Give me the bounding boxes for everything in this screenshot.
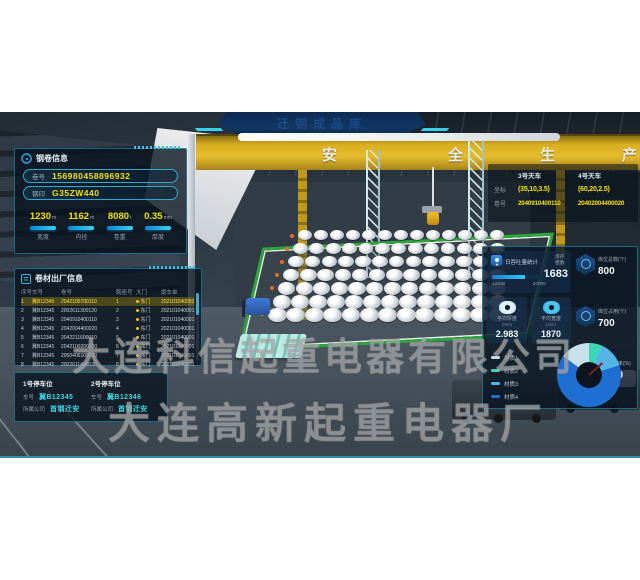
shipment-title-row: 卷材出厂信息 (15, 269, 201, 286)
shipment-row[interactable]: 8冀B1234520026114000308东门202101040001 (21, 360, 194, 369)
plate-value: 冀B12345 (39, 392, 73, 402)
steel-stamp-field[interactable]: 钢印 G35ZW440 (23, 186, 178, 200)
crane-3-coil: 2040910400110 (518, 200, 578, 207)
coil-icon (543, 301, 560, 314)
scrollbar-thumb[interactable] (196, 293, 199, 315)
coil-number-field[interactable]: 卷号 156980458896932 (23, 169, 178, 183)
crane-header-row: 3号天车 4号天车 (494, 168, 632, 182)
crane-coords-row: 坐标 (35,10,3.5) (60,20,2.5) (494, 182, 632, 196)
coil-label: 卷号 (494, 199, 518, 208)
warehouse-title-banner: 迁钢成品库 (218, 112, 426, 135)
scene-viewport[interactable]: 安 全 生 产 迁钢成品库 钢卷信息 卷号 156980458896932 钢印 (0, 112, 640, 458)
kpi-value: 800 (598, 266, 615, 277)
kpi-label: 库位占用(个) (598, 308, 636, 315)
metric-label: 厚度 (140, 232, 176, 241)
coil-metrics: 1230m 宽度 1162m 内径 8080t 卷重 0.35mm 厚度 (15, 200, 186, 241)
shipment-title: 卷材出厂信息 (35, 273, 83, 284)
company-label: 所属公司 (23, 405, 45, 413)
metric-unit: m (52, 215, 56, 221)
steel-stamp-label: 钢印 (32, 188, 45, 198)
legend-item[interactable]: 材质3 (491, 377, 518, 390)
slogan-char: 安 (322, 144, 337, 165)
slot-title: 2号停车位 (91, 378, 159, 388)
progress-fill (492, 275, 525, 279)
metric-inner-diameter: 1162m 内径 (63, 206, 99, 241)
parking-slot-2: 2号停车位 车号冀B12346 所属公司首钢迁安 (91, 378, 159, 416)
crane-cable (432, 167, 434, 209)
material-donut-chart (557, 343, 621, 407)
forklift (246, 298, 270, 315)
shipment-row[interactable]: 3冀B1234520409104001103东门202101040001 (21, 315, 194, 324)
legend-item[interactable]: 材质4 (491, 390, 518, 403)
company-value: 首钢迁安 (118, 404, 148, 414)
slots-occupied-icon (576, 306, 595, 327)
material-legend: 材质1材质2材质3材质4 (491, 351, 518, 403)
panel-dots (134, 146, 180, 149)
stock-count-label: 库存卷数 (555, 255, 568, 266)
warehouse-title: 迁钢成品库 (277, 115, 367, 132)
metric-bar (30, 226, 56, 230)
avg-thickness-value: 2.983 (487, 329, 527, 339)
coil-info-title-row: 钢卷信息 (15, 149, 186, 166)
metric-value: 1162 (68, 211, 89, 222)
metric-label: 卷重 (102, 232, 138, 241)
slogan-char: 产 (622, 144, 637, 165)
metric-value: 0.35 (144, 211, 163, 222)
metric-width: 1230m 宽度 (25, 206, 61, 241)
shipment-row[interactable]: 2冀B1234520026113001202东门202101040001 (21, 306, 194, 315)
throughput-current: 12230 (492, 282, 505, 287)
avg-width-card: 平均宽度 (mm) 1870 (531, 297, 571, 343)
avg-width-value: 1870 (531, 329, 571, 339)
crane-info-panel: 3号天车 4号天车 坐标 (35,10,3.5) (60,20,2.5) 卷号 … (488, 164, 638, 222)
legend-item[interactable]: 材质2 (491, 364, 518, 377)
shipment-row[interactable]: 1冀B1234520421007001101东门202101040001 (21, 297, 194, 306)
avg-thickness-label: 平均厚度 (487, 315, 527, 322)
crane-coil-row: 卷号 2040910400110 20402004400020 (494, 196, 632, 210)
stock-count-value: 1683 (544, 268, 568, 280)
crane-4-coil: 20402004400020 (578, 200, 640, 207)
coil-info-panel: 钢卷信息 卷号 156980458896932 钢印 G35ZW440 1230… (14, 148, 187, 254)
avg-thickness-card: 平均厚度 (mm) 2.983 (487, 297, 527, 343)
kpi-value: 700 (598, 318, 615, 329)
avg-width-label: 平均宽度 (531, 315, 571, 322)
shipment-row[interactable]: 5冀B1234520422116000105东门202101040001 (21, 333, 194, 342)
metric-label: 宽度 (25, 232, 61, 241)
metric-bar (145, 226, 171, 230)
metric-thickness: 0.35mm 厚度 (140, 206, 176, 241)
table-scrollbar[interactable] (196, 293, 199, 360)
panel-dots (149, 266, 195, 269)
shipment-row[interactable]: 4冀B1234520420044000204东门202101040001 (21, 324, 194, 333)
shipment-row[interactable]: 7冀B1234520504061000107东门202101040001 (21, 351, 194, 360)
shipment-table: 序号车号卷号鞍座号大门提车单 1冀B1234520421007001101东门2… (15, 286, 201, 369)
plate-label: 车号 (91, 393, 102, 401)
company-label: 所属公司 (91, 405, 113, 413)
parking-slot-1: 1号停车位 车号冀B12345 所属公司首钢迁安 (23, 378, 91, 416)
legend-item[interactable]: 材质1 (491, 351, 518, 364)
metric-value: 8080 (108, 211, 129, 222)
throughput-max: 20000 (533, 282, 546, 287)
kpi-total-slots: 库位总数(个) 800 (576, 251, 636, 300)
metric-unit: mm (164, 215, 172, 221)
plate-label: 车号 (23, 393, 34, 401)
coil-rack (235, 334, 307, 358)
coil-number-value: 156980458896932 (52, 171, 130, 181)
inventory-stats-panel: 日吞吐量统计 库存卷数 1683 12230 20000 平均厚度 (mm) 2… (482, 246, 638, 409)
throughput-range: 12230 20000 (492, 282, 546, 287)
throughput-icon (491, 255, 502, 266)
slot-title: 1号停车位 (23, 378, 91, 388)
avg-width-unit: (mm) (531, 322, 571, 327)
crane-hook (427, 212, 439, 225)
shipment-list-icon (21, 274, 31, 284)
crane-3-header: 3号天车 (518, 170, 578, 180)
throughput-progressbar (492, 275, 546, 279)
metric-value: 1230 (30, 211, 51, 222)
plate-value: 冀B12346 (107, 392, 141, 402)
shipment-table-body: 1冀B1234520421007001101东门2021010400012冀B1… (21, 297, 194, 369)
crane-3-coords: (35,10,3.5) (518, 186, 578, 193)
kpi-label: 库位总数(个) (598, 256, 636, 263)
metric-unit: m (90, 215, 94, 221)
throughput-title: 日吞吐量统计 (505, 258, 538, 266)
slogan-char: 全 (448, 144, 463, 165)
crane-4-coords: (60,20,2.5) (578, 186, 640, 193)
banner-accent-left (195, 128, 224, 131)
coil-info-icon (21, 153, 32, 164)
shipment-row[interactable]: 6冀B1234520421002001306东门202101040001 (21, 342, 194, 351)
metric-bar (68, 226, 94, 230)
coil-number-label: 卷号 (32, 171, 45, 181)
crane-4-header: 4号天车 (578, 170, 640, 180)
roof-strip (238, 133, 560, 141)
shipment-panel: 卷材出厂信息 序号车号卷号鞍座号大门提车单 1冀B123452042100700… (14, 268, 202, 366)
coil-info-title: 钢卷信息 (36, 153, 68, 164)
slogan-char: 生 (540, 144, 555, 165)
shipment-table-header: 序号车号卷号鞍座号大门提车单 (21, 287, 194, 297)
metric-weight: 8080t 卷重 (102, 206, 138, 241)
metric-bar (107, 226, 133, 230)
slots-total-icon (576, 254, 595, 275)
company-value: 首钢迁安 (50, 404, 80, 414)
metric-label: 内径 (63, 232, 99, 241)
coil-icon (499, 301, 516, 314)
steel-stamp-value: G35ZW440 (52, 188, 99, 198)
coords-label: 坐标 (494, 185, 518, 194)
banner-accent-right (421, 128, 450, 131)
throughput-card: 日吞吐量统计 库存卷数 1683 12230 20000 (487, 251, 571, 293)
parking-panel: 1号停车位 车号冀B12345 所属公司首钢迁安 2号停车位 车号冀B12346… (14, 372, 168, 422)
avg-thickness-unit: (mm) (487, 322, 527, 327)
metric-unit: t (130, 215, 131, 221)
